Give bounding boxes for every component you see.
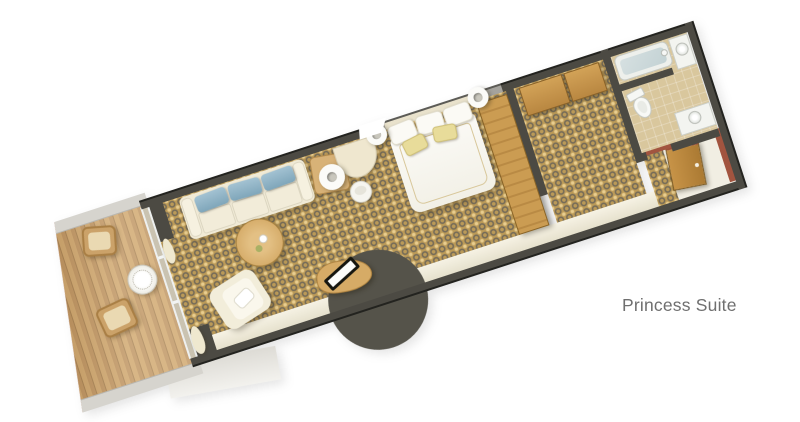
balcony-chair [81,225,117,257]
suite-name-label: Princess Suite [622,295,737,316]
suite-floorplan [40,20,751,403]
floorplan-canvas: Princess Suite [0,0,800,422]
glass-door-mullion [173,300,179,304]
glass-door-mullion [158,255,164,259]
